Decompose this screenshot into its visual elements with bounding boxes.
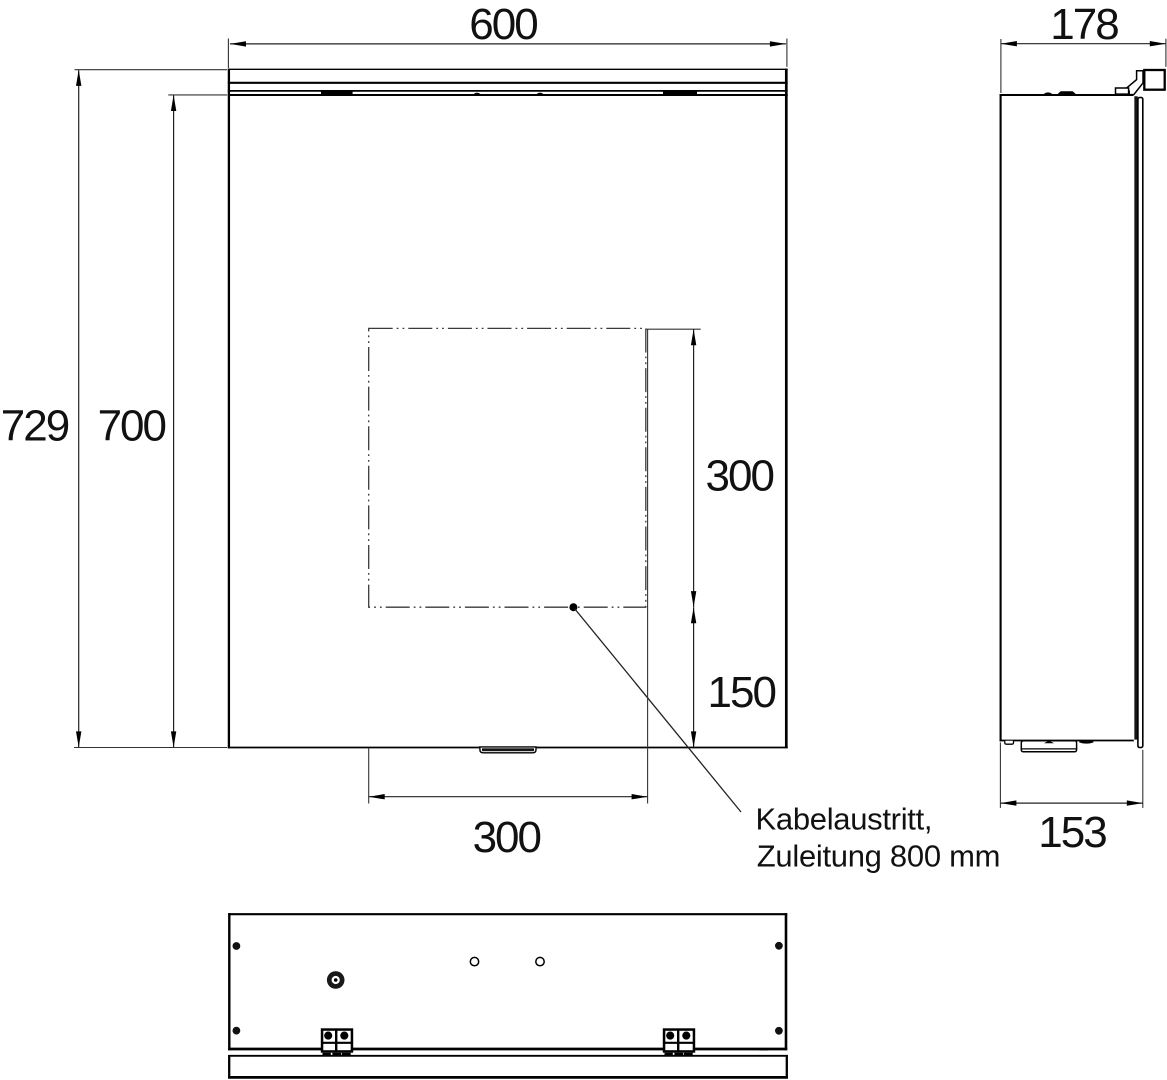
svg-text:Zuleitung 800 mm: Zuleitung 800 mm (757, 839, 1000, 874)
svg-text:178: 178 (1050, 0, 1118, 49)
svg-text:300: 300 (706, 452, 774, 501)
svg-text:153: 153 (1038, 808, 1106, 857)
svg-text:700: 700 (98, 401, 166, 450)
svg-text:300: 300 (473, 813, 541, 862)
svg-text:150: 150 (708, 668, 776, 717)
svg-text:Kabelaustritt,: Kabelaustritt, (756, 801, 933, 836)
svg-text:600: 600 (469, 0, 537, 49)
svg-text:729: 729 (1, 401, 69, 450)
